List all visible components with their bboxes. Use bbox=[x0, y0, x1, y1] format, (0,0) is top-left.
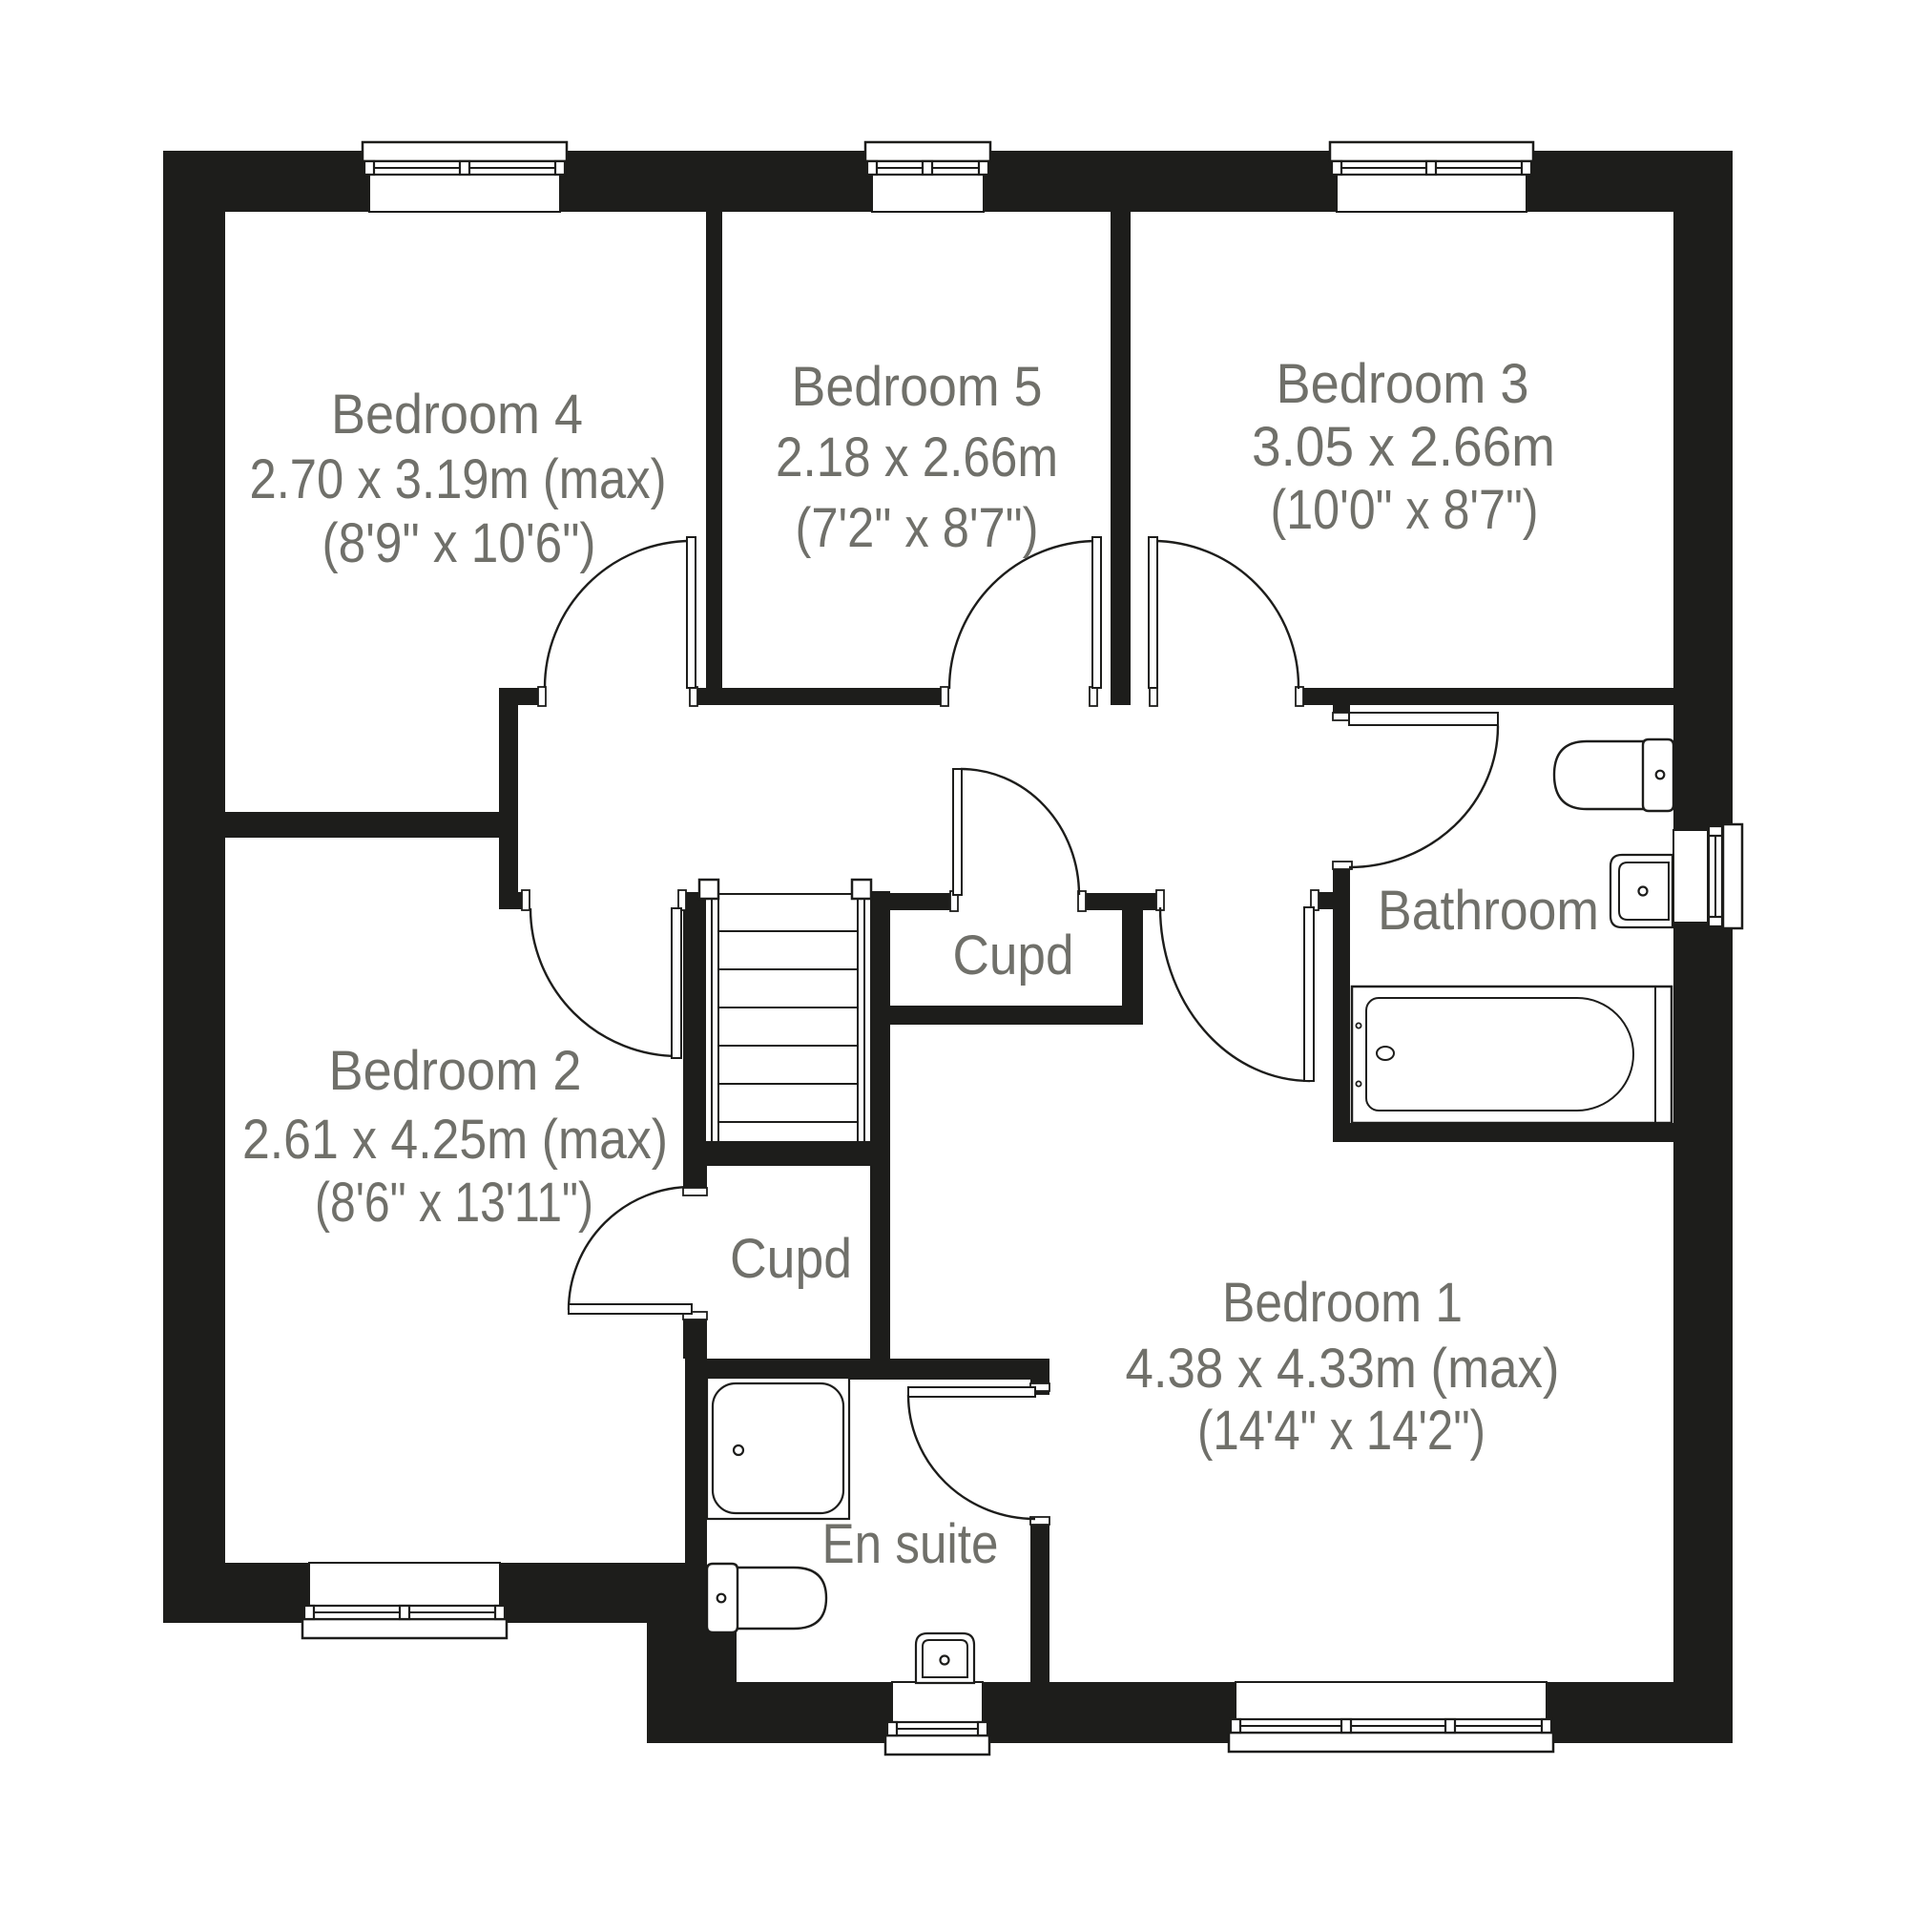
svg-text:Bedroom 2: Bedroom 2 bbox=[329, 1040, 582, 1102]
svg-text:(8'6" x 13'11"): (8'6" x 13'11") bbox=[315, 1172, 593, 1234]
svg-text:(10'0" x 8'7"): (10'0" x 8'7") bbox=[1271, 479, 1539, 541]
svg-text:(7'2" x 8'7"): (7'2" x 8'7") bbox=[796, 497, 1039, 559]
svg-text:Bedroom 5: Bedroom 5 bbox=[792, 356, 1043, 418]
svg-text:Cupd: Cupd bbox=[953, 924, 1074, 987]
svg-text:Cupd: Cupd bbox=[730, 1228, 852, 1290]
svg-text:2.18 x 2.66m: 2.18 x 2.66m bbox=[776, 426, 1058, 488]
svg-text:2.70 x 3.19m (max): 2.70 x 3.19m (max) bbox=[250, 448, 667, 510]
svg-text:En suite: En suite bbox=[822, 1513, 999, 1575]
svg-text:Bedroom 1: Bedroom 1 bbox=[1222, 1272, 1463, 1334]
svg-text:2.61 x 4.25m (max): 2.61 x 4.25m (max) bbox=[242, 1109, 668, 1171]
svg-text:Bedroom 4: Bedroom 4 bbox=[331, 384, 583, 446]
svg-text:(8'9" x 10'6"): (8'9" x 10'6") bbox=[322, 512, 596, 574]
svg-text:Bedroom 3: Bedroom 3 bbox=[1277, 353, 1529, 415]
svg-text:Bathroom: Bathroom bbox=[1378, 880, 1599, 942]
svg-text:3.05 x 2.66m: 3.05 x 2.66m bbox=[1252, 416, 1555, 478]
svg-text:(14'4" x 14'2"): (14'4" x 14'2") bbox=[1197, 1400, 1485, 1462]
svg-text:4.38 x 4.33m (max): 4.38 x 4.33m (max) bbox=[1126, 1338, 1560, 1400]
